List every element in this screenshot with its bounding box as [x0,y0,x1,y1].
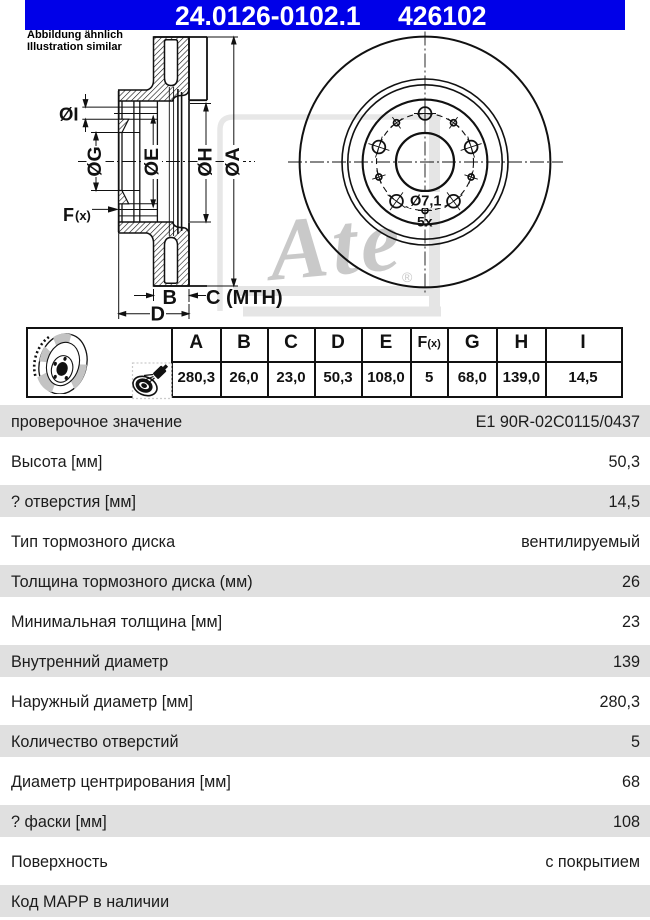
svg-text:ØG: ØG [84,146,106,176]
svg-text:®: ® [402,269,413,285]
svg-text:Ate: Ate [260,192,407,301]
svg-text:ØI: ØI [59,104,79,125]
svg-text:ØA: ØA [222,147,244,176]
svg-text:D: D [151,304,165,326]
svg-text:C (MTH): C (MTH) [206,287,283,309]
svg-text:ØE: ØE [141,148,163,176]
svg-text:ØH: ØH [195,147,217,176]
svg-text:Ø7,1: Ø7,1 [410,194,441,210]
svg-text:(x): (x) [75,208,91,223]
svg-text:F: F [63,205,74,225]
svg-text:5x: 5x [417,214,433,230]
